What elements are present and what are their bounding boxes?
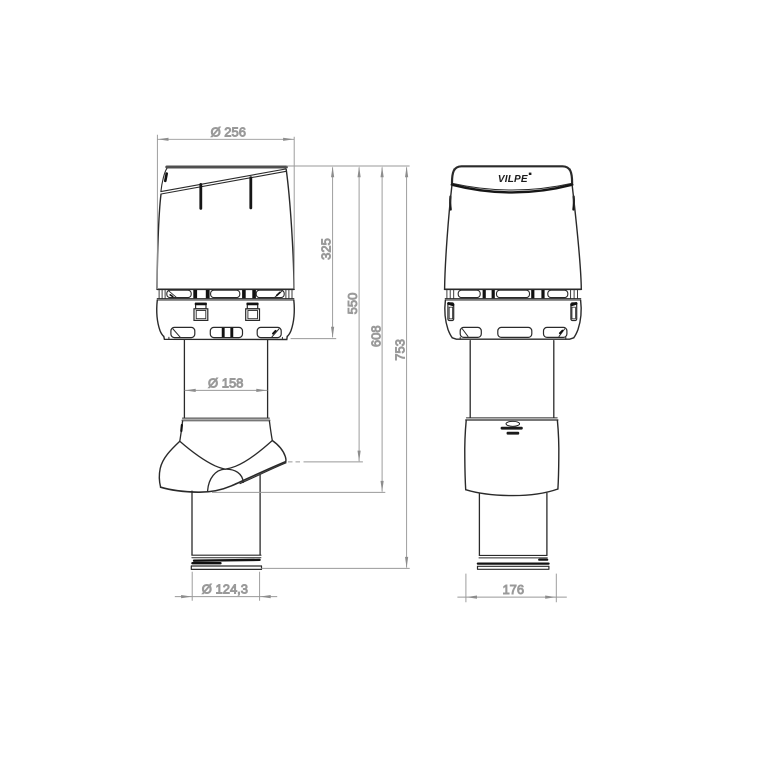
svg-text:608: 608 (368, 325, 383, 347)
svg-text:176: 176 (502, 582, 524, 597)
svg-text:325: 325 (319, 238, 334, 260)
svg-text:753: 753 (393, 339, 408, 361)
svg-text:Ø 124,3: Ø 124,3 (202, 581, 248, 596)
svg-text:VILPE: VILPE (498, 174, 528, 185)
svg-text:Ø 158: Ø 158 (208, 375, 243, 390)
svg-text:550: 550 (345, 293, 360, 315)
svg-text:Ø 256: Ø 256 (211, 125, 246, 140)
